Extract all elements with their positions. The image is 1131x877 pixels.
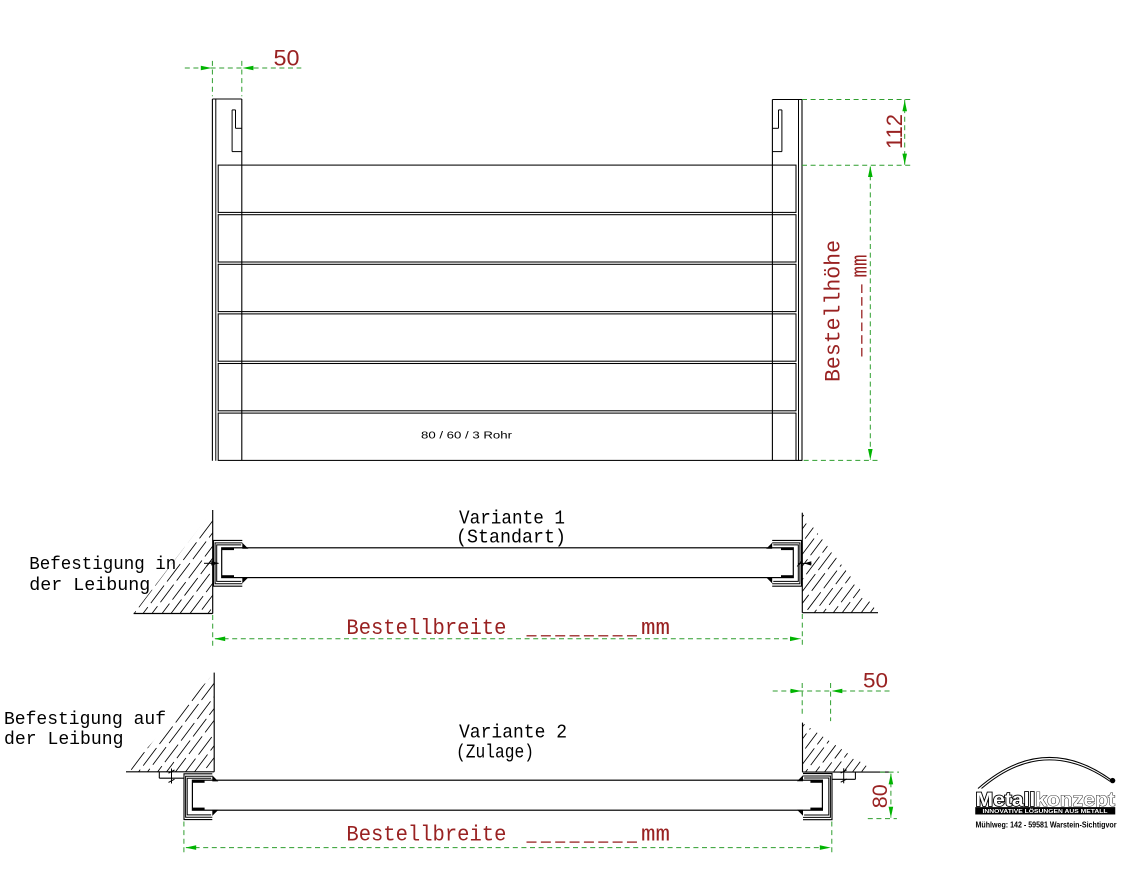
svg-text:80: 80 xyxy=(869,784,892,808)
svg-text:50: 50 xyxy=(863,669,888,692)
svg-text:Befestigung in: Befestigung in xyxy=(29,554,176,575)
svg-text:Mühlweg: 142 - 59581 Warstein-: Mühlweg: 142 - 59581 Warstein-Sichtigvor xyxy=(976,821,1117,830)
svg-text:der Leibung: der Leibung xyxy=(4,729,124,750)
svg-text:Bestellbreite: Bestellbreite xyxy=(346,823,506,848)
svg-text:Bestellbreite: Bestellbreite xyxy=(346,616,506,641)
svg-text:mm: mm xyxy=(849,255,874,278)
svg-text:INNOVATIVE LÖSUNGEN AUS METALL: INNOVATIVE LÖSUNGEN AUS METALL xyxy=(983,808,1108,815)
svg-text:Variante 2: Variante 2 xyxy=(459,721,567,743)
svg-text:(Standart): (Standart) xyxy=(456,527,566,549)
svg-text:mm: mm xyxy=(641,616,670,641)
svg-text:(Zulage): (Zulage) xyxy=(456,741,534,763)
svg-text:Bestellhöhe: Bestellhöhe xyxy=(822,240,847,382)
svg-text:112: 112 xyxy=(882,114,907,149)
svg-text:50: 50 xyxy=(274,46,300,71)
svg-text:mm: mm xyxy=(641,823,670,848)
svg-text:80 / 60 / 3 Rohr: 80 / 60 / 3 Rohr xyxy=(421,430,513,441)
svg-text:Befestigung auf: Befestigung auf xyxy=(4,709,166,730)
svg-text:der Leibung: der Leibung xyxy=(29,575,150,596)
